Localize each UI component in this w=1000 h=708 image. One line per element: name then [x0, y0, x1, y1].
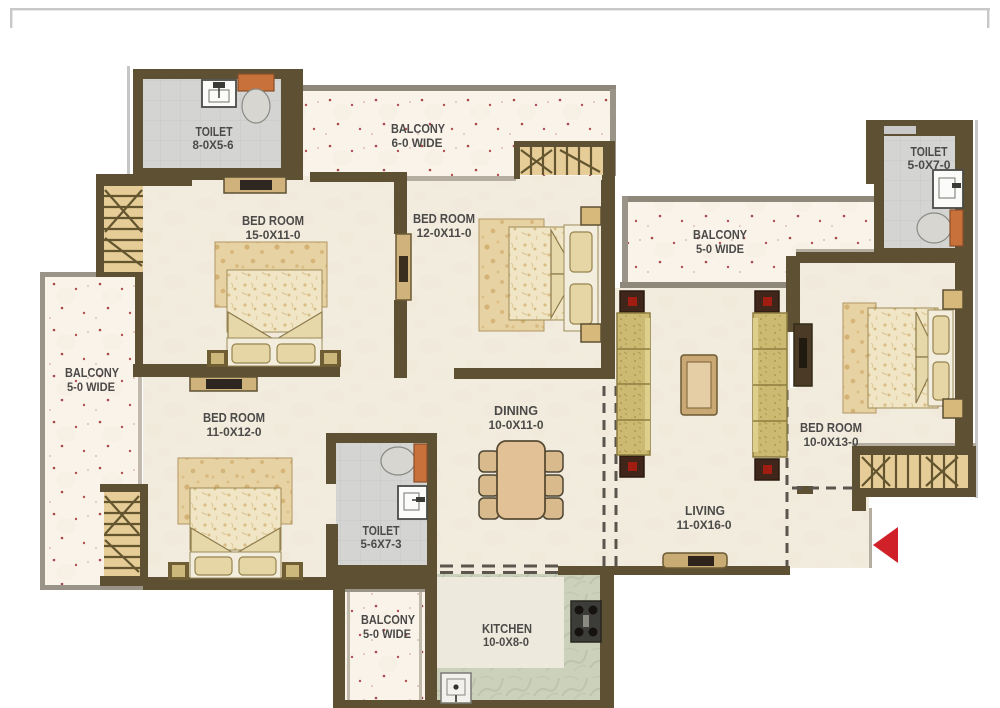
svg-text:10-0X13-0: 10-0X13-0 — [804, 435, 859, 449]
svg-text:5-0X7-0: 5-0X7-0 — [908, 158, 951, 172]
svg-text:KITCHEN: KITCHEN — [482, 621, 532, 636]
svg-text:BALCONY: BALCONY — [693, 227, 747, 242]
svg-text:BED ROOM: BED ROOM — [242, 213, 304, 228]
svg-text:BED ROOM: BED ROOM — [413, 211, 475, 226]
svg-text:TOILET: TOILET — [363, 523, 400, 538]
svg-text:6-0 WIDE: 6-0 WIDE — [392, 136, 443, 150]
svg-text:BED ROOM: BED ROOM — [203, 410, 265, 425]
svg-text:TOILET: TOILET — [196, 124, 233, 139]
svg-text:DINING: DINING — [494, 403, 538, 418]
svg-text:10-0X11-0: 10-0X11-0 — [489, 418, 544, 432]
svg-text:5-0 WIDE: 5-0 WIDE — [696, 242, 744, 256]
svg-text:12-0X11-0: 12-0X11-0 — [417, 226, 472, 240]
svg-text:8-0X5-6: 8-0X5-6 — [193, 138, 234, 152]
svg-text:LIVING: LIVING — [685, 503, 725, 518]
svg-text:TOILET: TOILET — [911, 144, 948, 159]
svg-text:10-0X8-0: 10-0X8-0 — [483, 635, 529, 649]
svg-text:BALCONY: BALCONY — [391, 121, 445, 136]
svg-text:11-0X16-0: 11-0X16-0 — [677, 518, 732, 532]
svg-text:5-0 WIDE: 5-0 WIDE — [363, 627, 411, 641]
svg-text:BALCONY: BALCONY — [361, 612, 415, 627]
svg-text:11-0X12-0: 11-0X12-0 — [207, 425, 262, 439]
svg-text:5-6X7-3: 5-6X7-3 — [361, 537, 402, 551]
svg-text:BED ROOM: BED ROOM — [800, 420, 862, 435]
svg-text:BALCONY: BALCONY — [65, 365, 119, 380]
svg-text:15-0X11-0: 15-0X11-0 — [246, 228, 301, 242]
svg-text:5-0 WIDE: 5-0 WIDE — [67, 380, 115, 394]
